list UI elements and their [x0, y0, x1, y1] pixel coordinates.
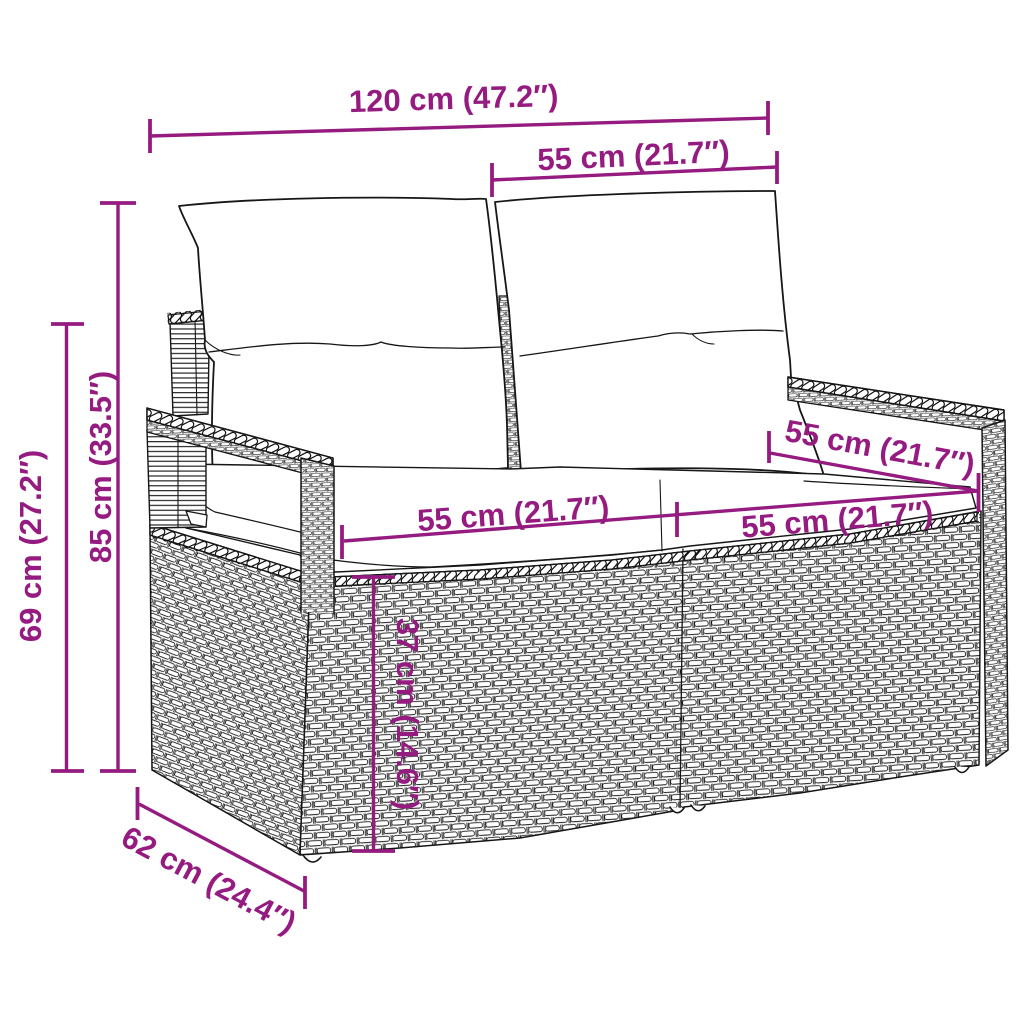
svg-text:69 cm (27.2″): 69 cm (27.2″)	[13, 450, 48, 642]
svg-text:85 cm (33.5″): 85 cm (33.5″)	[83, 371, 118, 563]
svg-text:37 cm (14.6″): 37 cm (14.6″)	[390, 618, 425, 810]
svg-text:120 cm (47.2″): 120 cm (47.2″)	[348, 78, 559, 119]
